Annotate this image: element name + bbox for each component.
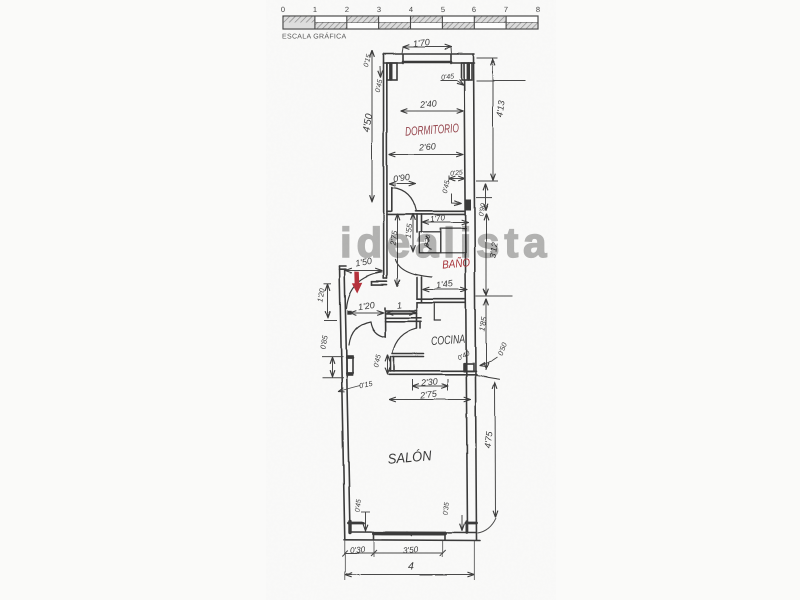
svg-text:idealista: idealista [340,219,551,266]
svg-text:4: 4 [408,561,414,573]
svg-text:5: 5 [441,5,445,14]
svg-text:2: 2 [345,5,349,14]
svg-text:0'35: 0'35 [443,502,451,516]
svg-text:1: 1 [396,300,402,310]
svg-text:4: 4 [409,5,413,14]
svg-text:1'70: 1'70 [412,37,430,49]
svg-text:2'30: 2'30 [420,376,439,388]
svg-text:0'30: 0'30 [350,545,366,555]
svg-text:6: 6 [472,5,476,14]
svg-text:0'45: 0'45 [355,499,363,513]
svg-text:2'60: 2'60 [418,141,437,153]
svg-text:ESCALA GRÁFICA: ESCALA GRÁFICA [282,32,347,41]
svg-text:0: 0 [281,5,285,14]
svg-text:3'50: 3'50 [403,545,419,555]
svg-text:1: 1 [313,5,317,14]
svg-text:8: 8 [536,5,540,14]
svg-text:2'40: 2'40 [419,98,438,110]
svg-text:0'45: 0'45 [441,73,455,81]
svg-text:0'25: 0'25 [450,169,464,177]
svg-text:COCINA: COCINA [431,332,466,348]
svg-text:7: 7 [504,5,508,14]
svg-text:3: 3 [377,5,381,14]
